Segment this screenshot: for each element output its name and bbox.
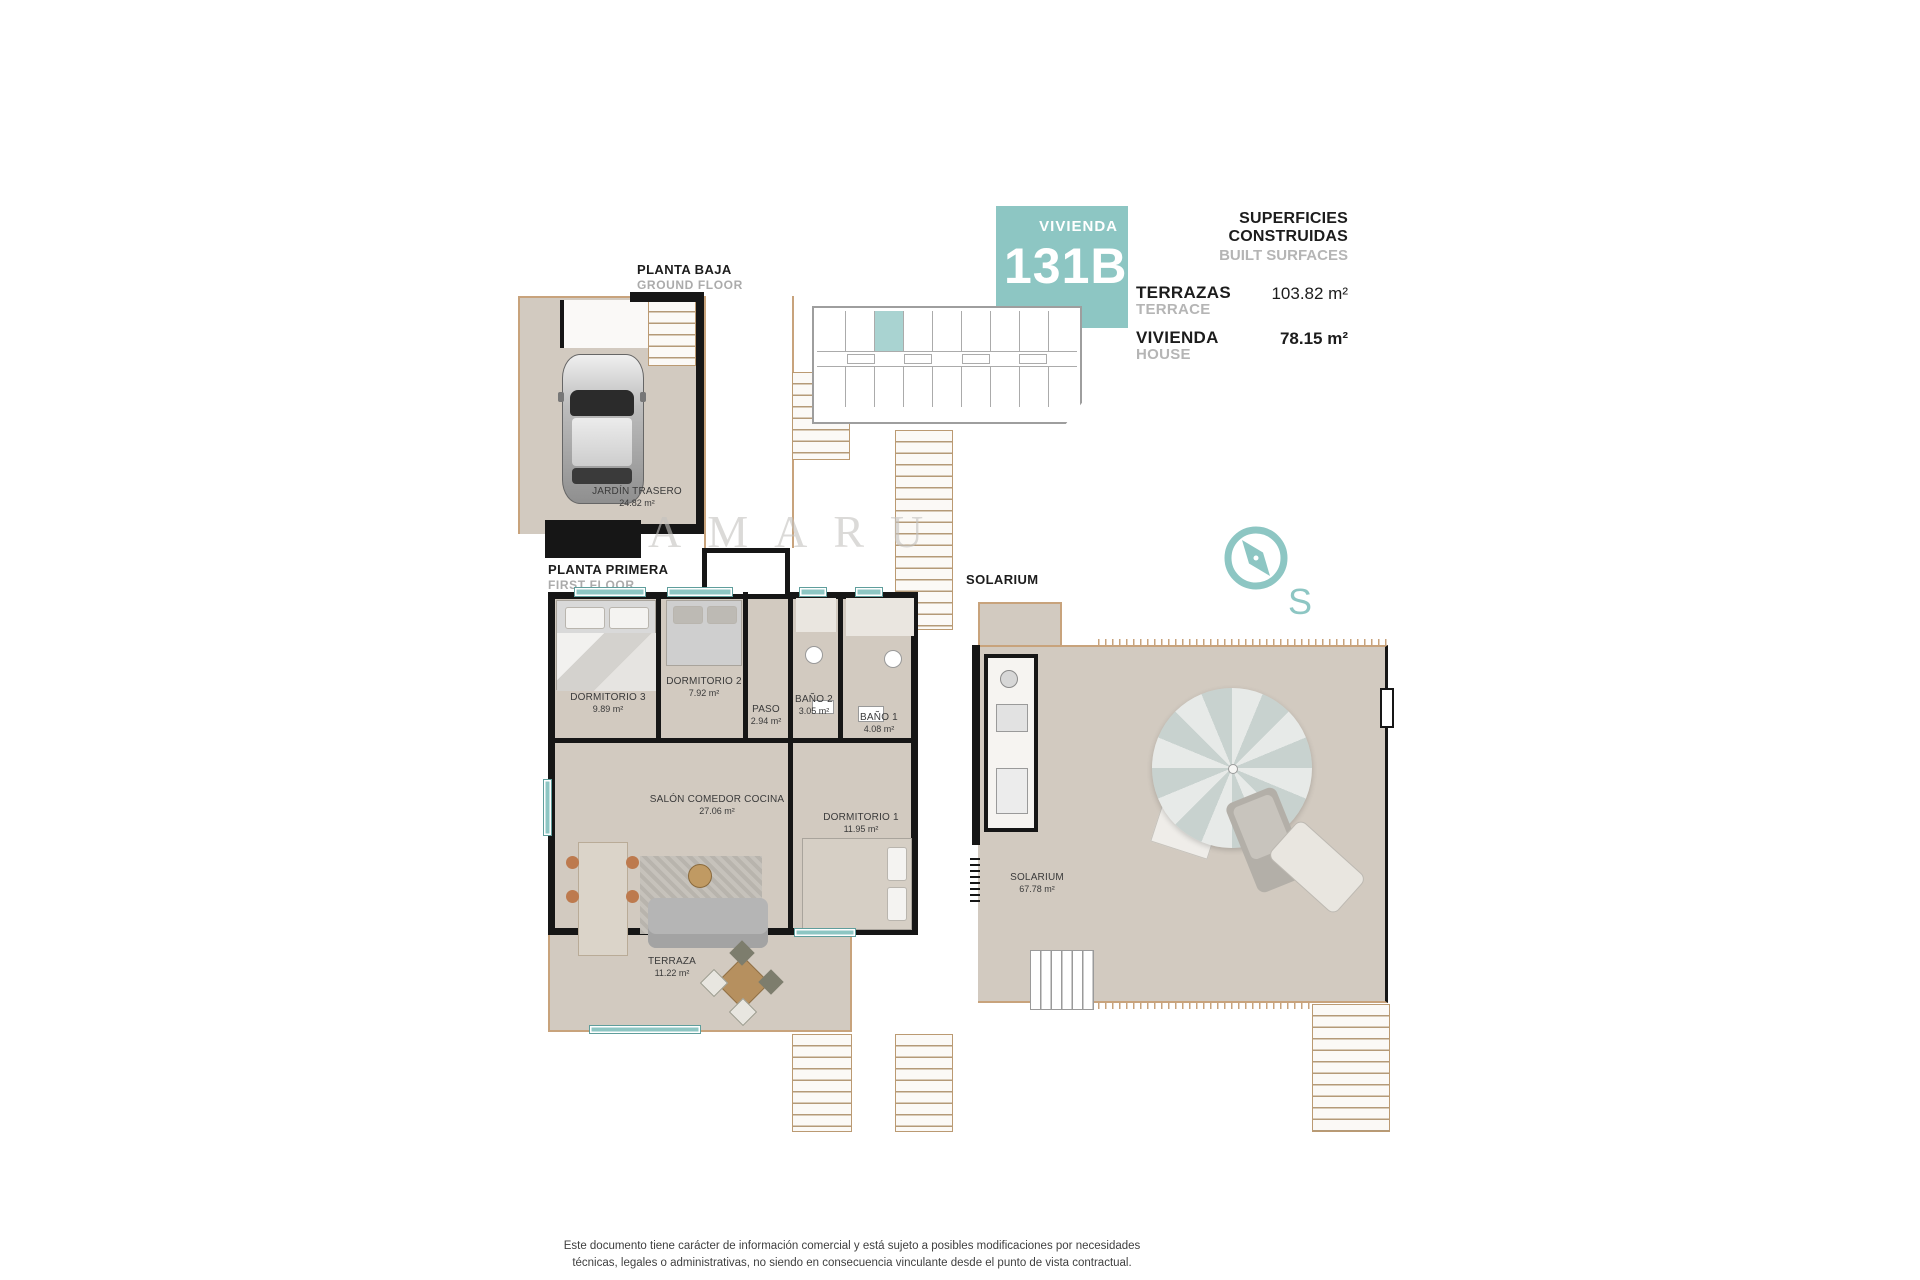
car-rear-window: [572, 468, 632, 484]
room-label-dormitorio3: DORMITORIO 39.89 m²: [548, 692, 668, 714]
room-label-salon: SALÓN COMEDOR COCINA27.06 m²: [637, 794, 797, 816]
toilet-graphic: [805, 646, 823, 664]
surface-sublabel: HOUSE: [1136, 347, 1219, 362]
floorplan-sheet: { "colors":{ "teal":"#8dc6c3", "tealLigh…: [0, 0, 1920, 1280]
surfaces-table: SUPERFICIES CONSTRUIDAS BUILT SURFACES T…: [1136, 210, 1348, 362]
bath-tiles: [796, 598, 836, 632]
surfaces-title: SUPERFICIES CONSTRUIDAS: [1136, 210, 1348, 246]
car-roof: [572, 418, 632, 466]
room-label-bano1: BAÑO 14.08 m²: [844, 712, 914, 734]
unit-number: 131B: [996, 237, 1128, 295]
sofa-graphic: [648, 898, 768, 948]
wall-segment: [838, 592, 843, 742]
chair-graphic: [566, 890, 579, 903]
garage-entry: [560, 300, 652, 348]
toilet-graphic: [884, 650, 902, 668]
surface-label: TERRAZAS: [1136, 284, 1231, 301]
terrace-hatch: [1098, 1001, 1312, 1009]
coffee-table: [688, 864, 712, 888]
surface-row-terrace: TERRAZAS TERRACE 103.82 m²: [1136, 284, 1348, 317]
dining-table: [578, 842, 628, 956]
window-marker: [590, 1026, 700, 1033]
site-plan: [812, 306, 1082, 424]
bed-graphic: [666, 600, 742, 666]
solarium-title: SOLARIUM: [966, 572, 1039, 588]
unit-badge-label: VIVIENDA: [996, 206, 1128, 235]
site-plan-row: [817, 367, 1077, 407]
car-mirror: [640, 392, 646, 402]
wall-segment: [548, 738, 918, 743]
wall-segment: [696, 296, 704, 532]
window-marker: [795, 929, 855, 936]
room-label-dormitorio1: DORMITORIO 111.95 m²: [801, 812, 921, 834]
surface-row-house: VIVIENDA HOUSE 78.15 m²: [1136, 329, 1348, 362]
outdoor-kitchen: [984, 654, 1038, 832]
highlighted-unit: [875, 311, 904, 351]
watermark-text: AMARU: [648, 505, 949, 558]
chair-graphic: [626, 856, 639, 869]
ground-floor-title: PLANTA BAJA GROUND FLOOR: [637, 262, 743, 292]
wall-segment: [656, 592, 661, 742]
bath-tiles: [846, 598, 914, 636]
disclaimer-line-2: técnicas, legales o administrativas, no …: [352, 1255, 1352, 1272]
terrace-hatch: [1098, 639, 1388, 645]
wall-segment: [972, 645, 980, 845]
chair-graphic: [566, 856, 579, 869]
window-marker: [1380, 688, 1394, 728]
room-label-terraza: TERRAZA11.22 m²: [622, 956, 722, 978]
window-marker: [575, 588, 645, 596]
chair-graphic: [626, 890, 639, 903]
window-marker: [800, 588, 826, 596]
car-graphic: [562, 354, 642, 502]
wall-corner-block: [545, 520, 641, 558]
surfaces-subtitle: BUILT SURFACES: [1136, 247, 1348, 264]
bed-graphic: [556, 600, 656, 690]
room-label-bano2: BAÑO 23.05 m²: [784, 694, 844, 716]
stairs-block: [1312, 1004, 1390, 1132]
car-mirror: [558, 392, 564, 402]
car-windshield: [570, 390, 634, 416]
legal-disclaimer: Este documento tiene carácter de informa…: [352, 1238, 1352, 1273]
entry-stairs: [648, 300, 696, 366]
window-marker: [856, 588, 882, 596]
surface-label: VIVIENDA: [1136, 329, 1219, 346]
stairs-block: [792, 1034, 852, 1132]
cabinet-graphic: [996, 768, 1028, 814]
window-marker: [544, 780, 551, 835]
wall-segment: [630, 292, 704, 302]
room-label-solarium: SOLARIUM67.78 m²: [977, 872, 1097, 894]
surface-sublabel: TERRACE: [1136, 302, 1231, 317]
surface-value: 103.82 m²: [1271, 284, 1348, 304]
stairs-block: [895, 1034, 953, 1132]
compass-icon: S: [1212, 518, 1322, 628]
room-label-dormitorio2: DORMITORIO 27.92 m²: [654, 676, 754, 698]
site-plan-corridor: [817, 352, 1077, 367]
solarium-upper-notch: [978, 602, 1062, 648]
compass-south-label: S: [1288, 581, 1312, 622]
sink-graphic: [1000, 670, 1018, 688]
grill-graphic: [996, 704, 1028, 732]
site-plan-row: [817, 311, 1077, 352]
disclaimer-line-1: Este documento tiene carácter de informa…: [352, 1238, 1352, 1255]
window-marker: [668, 588, 732, 596]
bed-graphic: [802, 838, 912, 930]
wall-segment: [788, 738, 793, 935]
solarium-stairs: [1030, 950, 1094, 1010]
surface-value: 78.15 m²: [1280, 329, 1348, 349]
